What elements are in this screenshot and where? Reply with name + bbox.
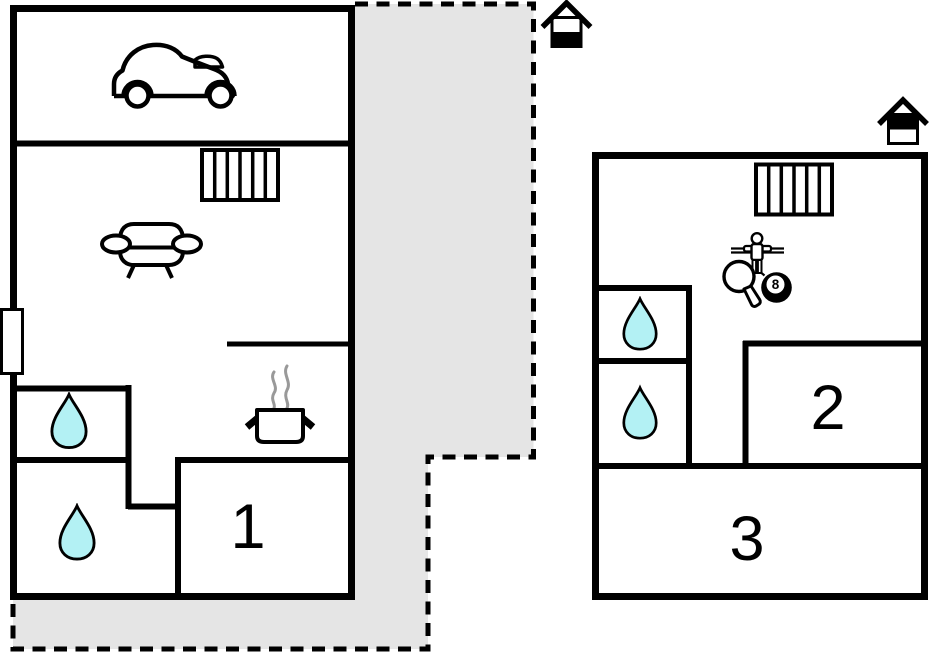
room-1-label: 1: [193, 493, 303, 561]
house-entrance-icon: [543, 3, 591, 47]
radiator-icon: [202, 150, 278, 200]
room-2-label: 2: [773, 374, 883, 442]
eight-ball-number: 8: [772, 277, 780, 292]
eight-ball-icon: 8: [761, 272, 792, 303]
floor-plan: 8 1 2 3: [0, 0, 929, 652]
radiator-icon: [756, 165, 832, 215]
house-entrance-icon: [879, 100, 927, 144]
room-3-label: 3: [692, 505, 802, 573]
window-marker: [2, 310, 23, 374]
